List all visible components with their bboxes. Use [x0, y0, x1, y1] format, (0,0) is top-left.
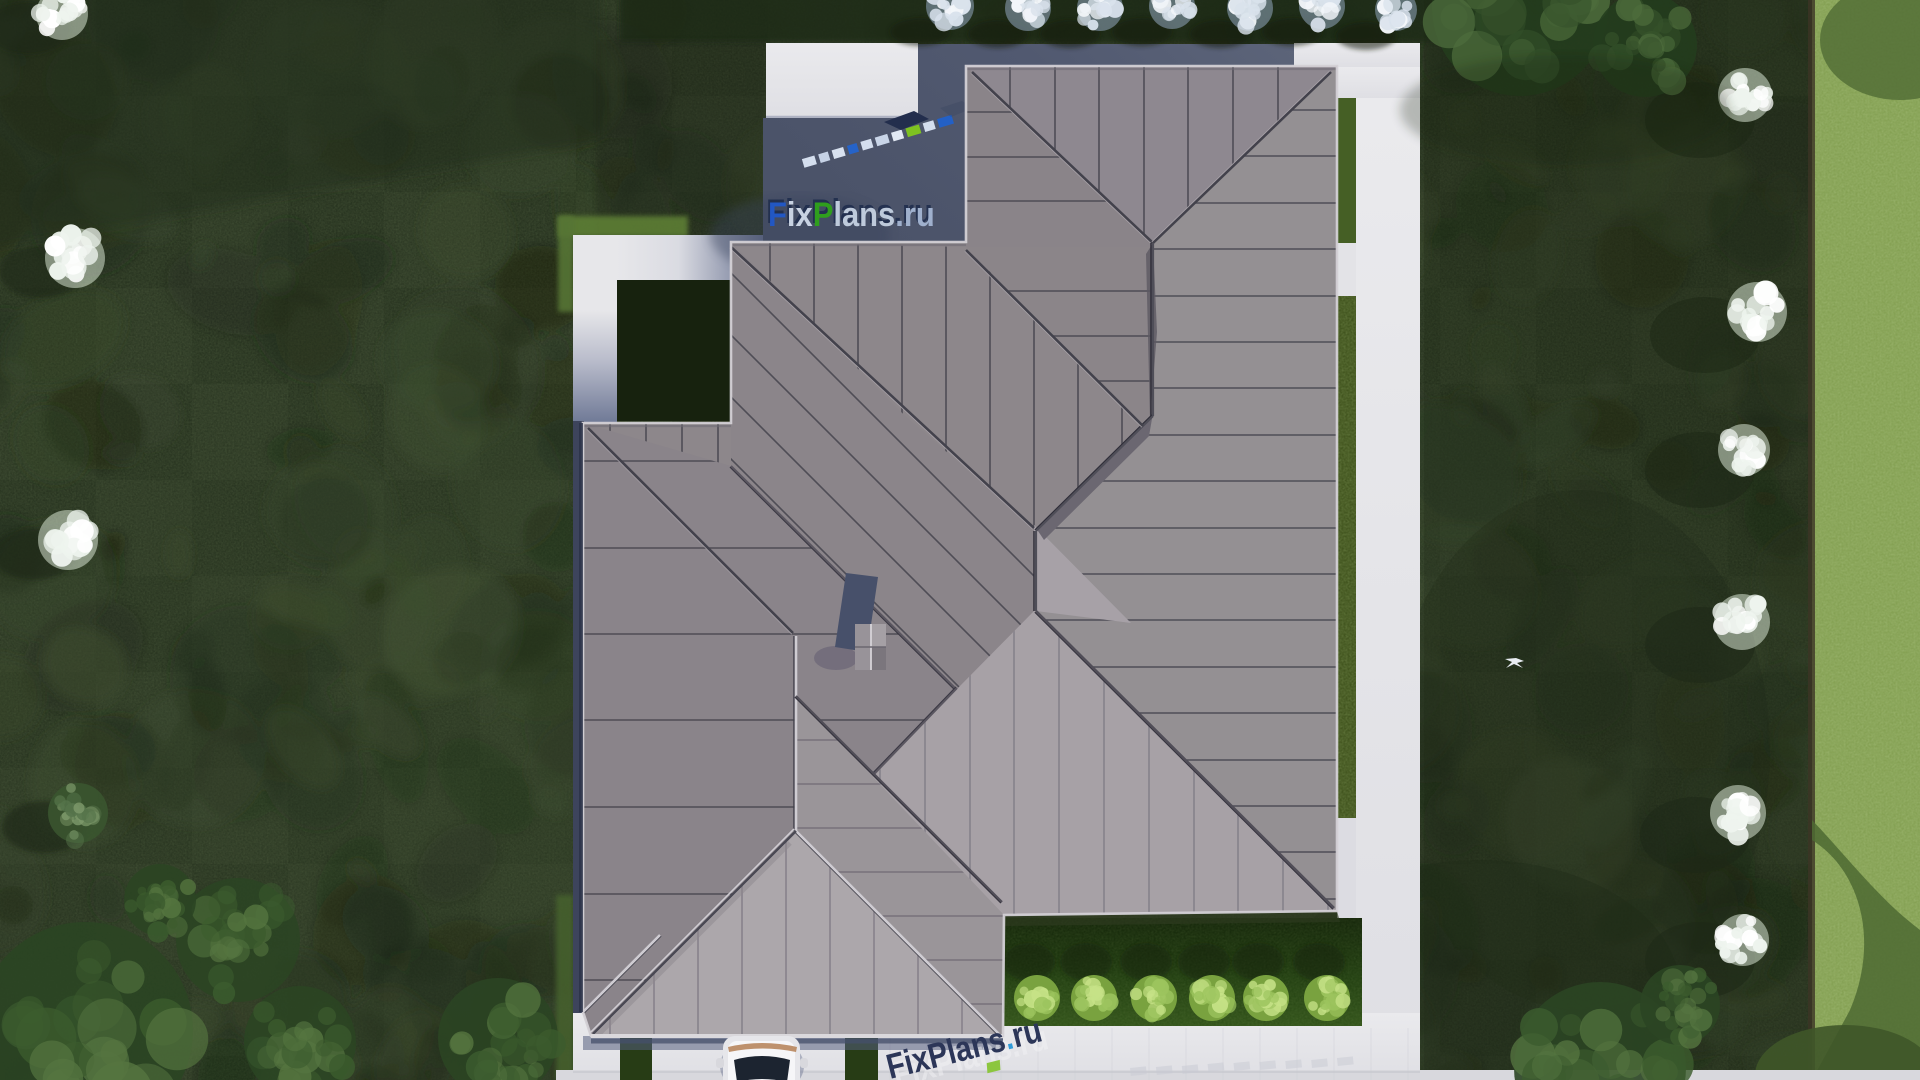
svg-text:FixPlans.ru: FixPlans.ru — [768, 196, 935, 234]
